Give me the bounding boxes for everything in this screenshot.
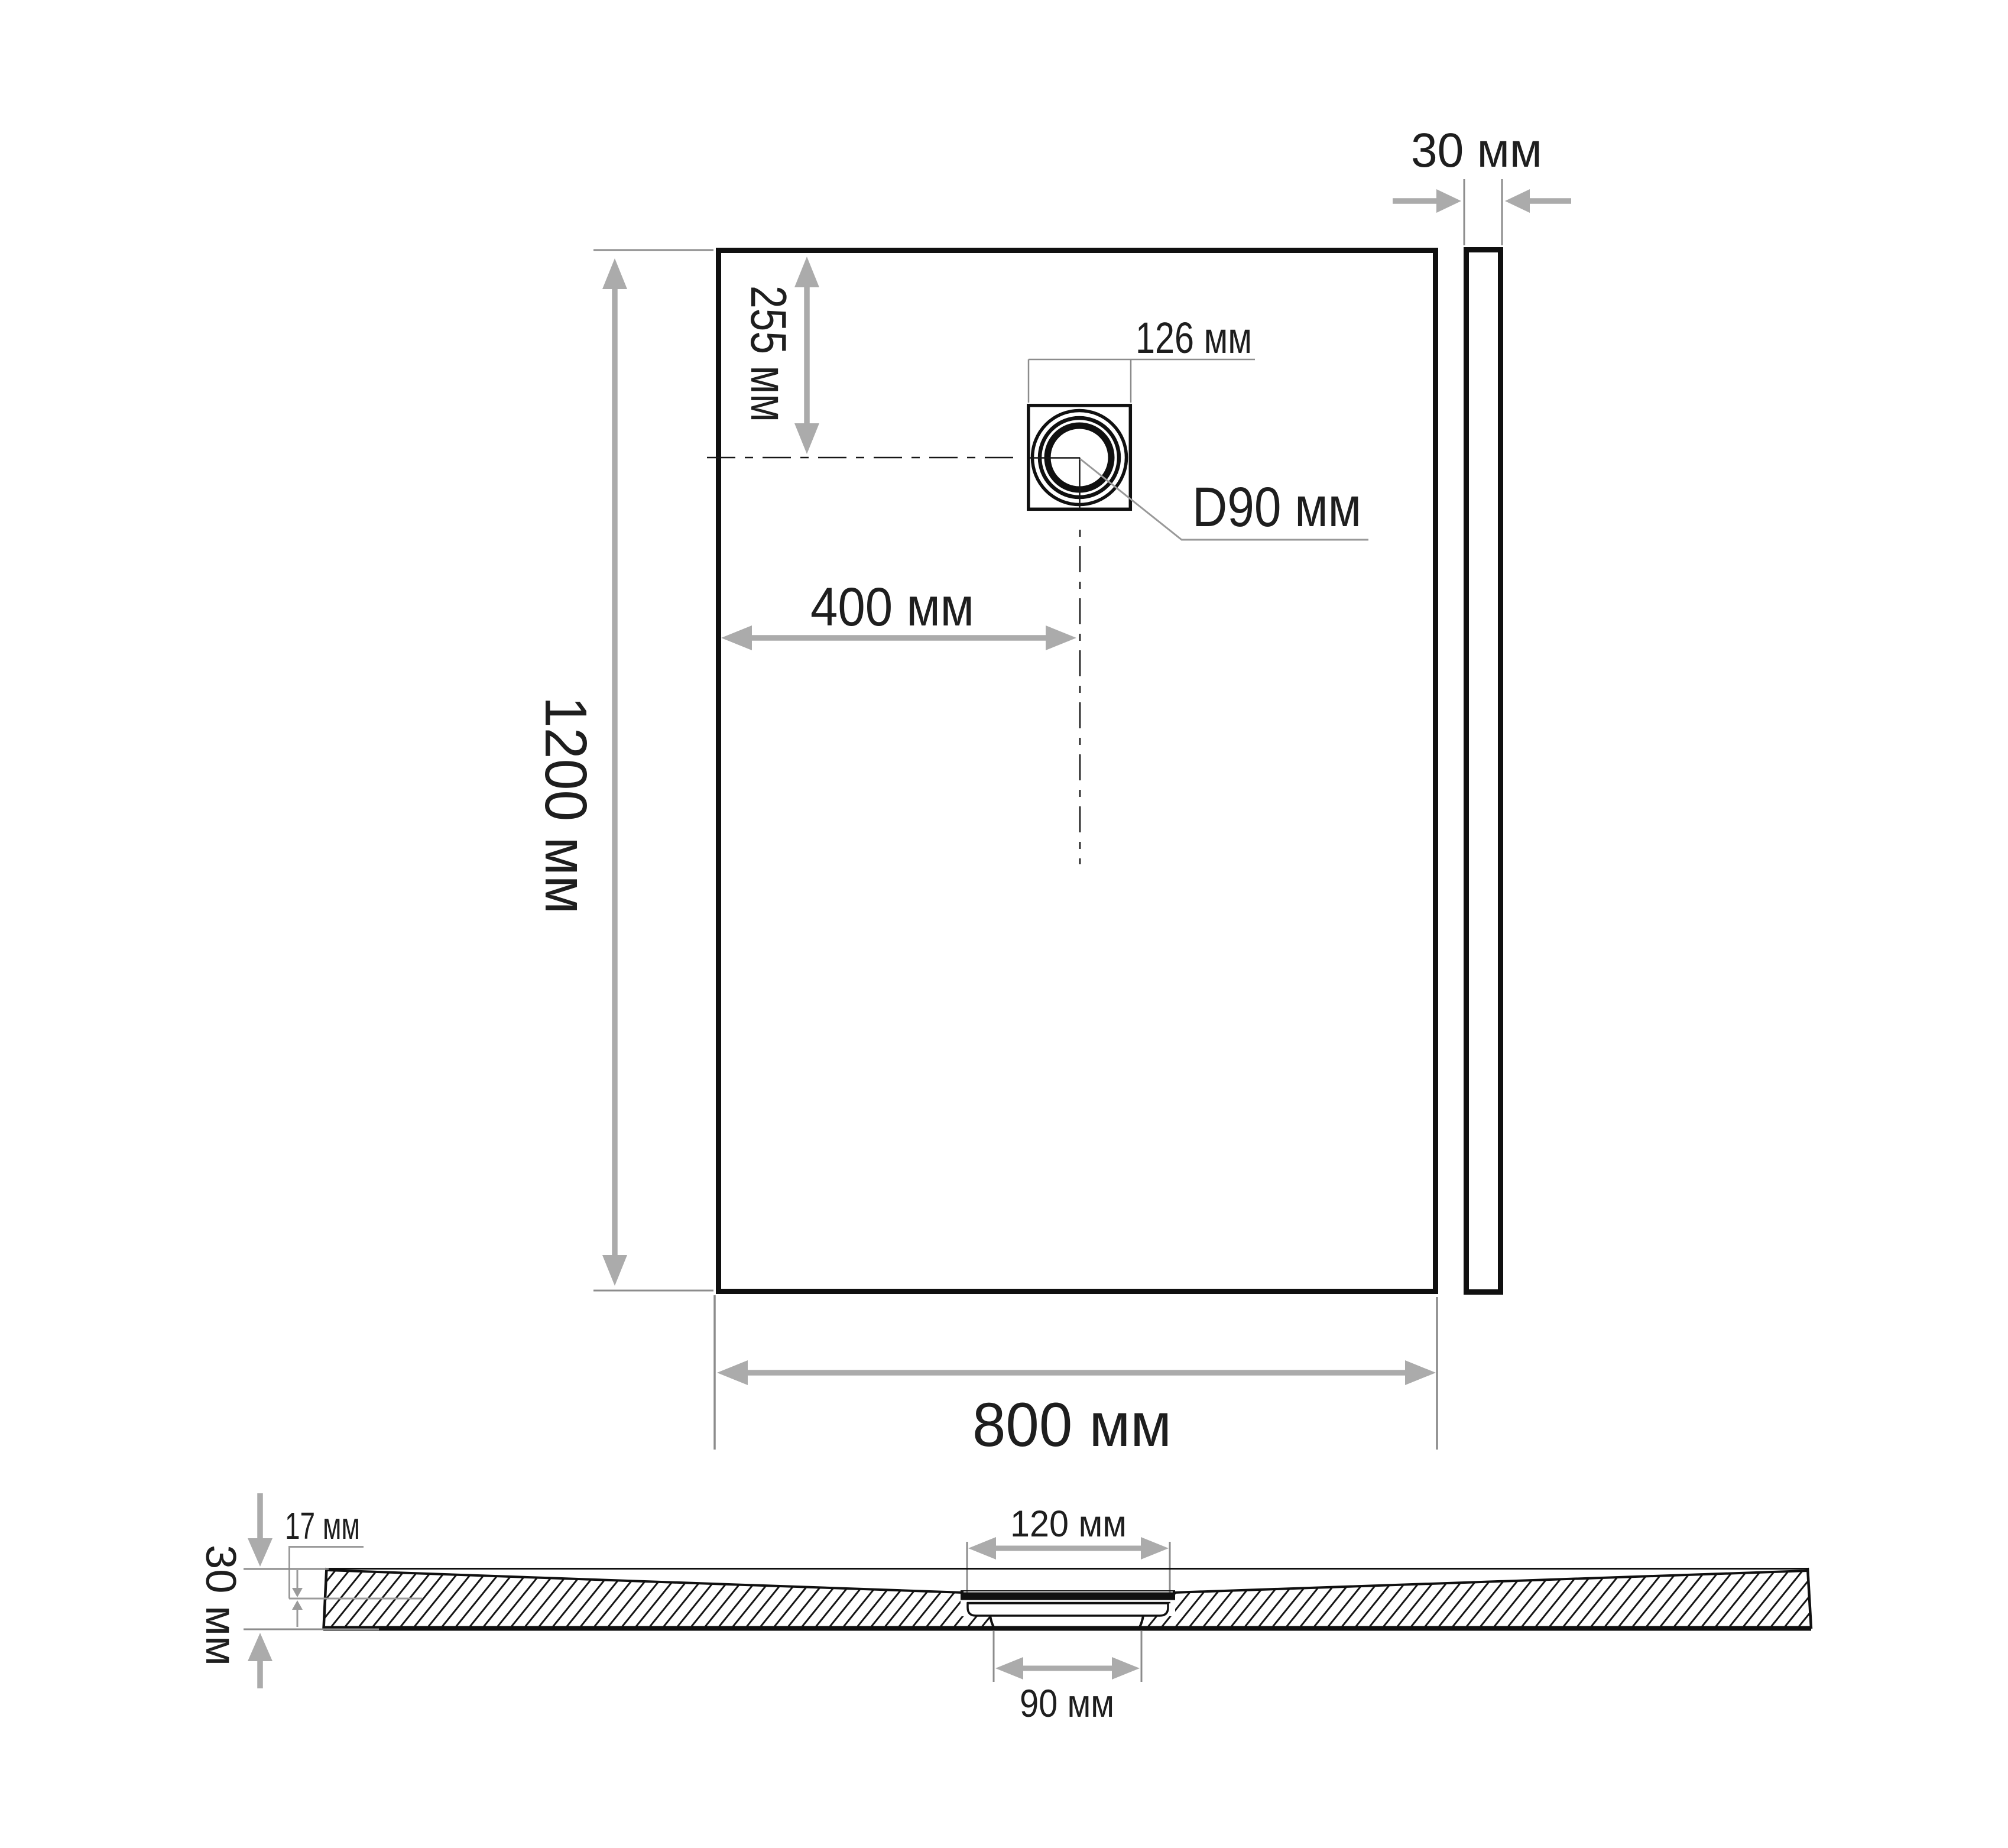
svg-text:400 мм: 400 мм [810, 577, 974, 637]
svg-text:30 мм: 30 мм [197, 1545, 244, 1666]
svg-text:800 мм: 800 мм [972, 1390, 1172, 1460]
svg-text:120 мм: 120 мм [1010, 1503, 1127, 1545]
svg-text:D90 мм: D90 мм [1192, 476, 1361, 539]
svg-text:126 мм: 126 мм [1136, 313, 1252, 362]
svg-text:90 мм: 90 мм [1020, 1681, 1114, 1725]
svg-text:17 мм: 17 мм [285, 1505, 360, 1547]
svg-text:30 мм: 30 мм [1411, 124, 1542, 177]
svg-text:1200 мм: 1200 мм [533, 696, 599, 914]
svg-text:255 мм: 255 мм [740, 286, 796, 422]
